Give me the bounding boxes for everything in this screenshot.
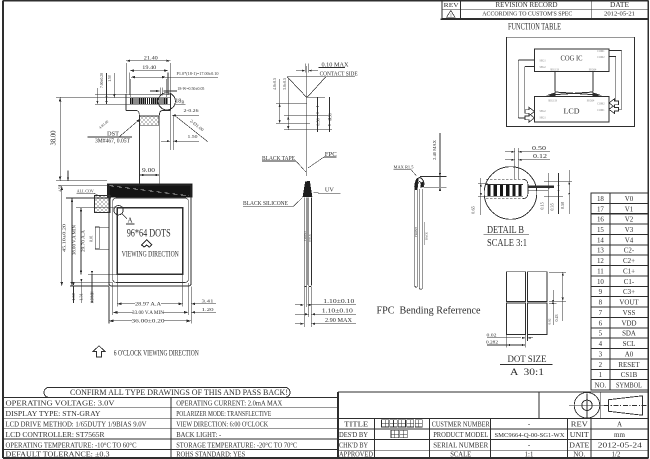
svg-text:2: 2 xyxy=(599,362,603,369)
svg-text:SDA: SDA xyxy=(622,331,636,338)
svg-text:0.50: 0.50 xyxy=(315,118,320,126)
svg-text:19.40: 19.40 xyxy=(142,66,157,71)
svg-text:36.00±0.20: 36.00±0.20 xyxy=(132,320,166,325)
svg-text:3.0±0.5: 3.0±0.5 xyxy=(283,78,287,90)
svg-text:0.50: 0.50 xyxy=(532,146,546,152)
svg-text:VSS: VSS xyxy=(623,310,636,317)
svg-text:TITLE: TITLE xyxy=(344,420,368,428)
svg-text:POLARIZER MODE: TRANSFLECTIVE: POLARIZER MODE: TRANSFLECTIVE xyxy=(176,409,271,418)
svg-text:1/2: 1/2 xyxy=(612,452,621,459)
svg-text:BLACK SILICONE: BLACK SILICONE xyxy=(243,201,288,207)
svg-text:A 30:1: A 30:1 xyxy=(510,367,544,378)
svg-text:UV: UV xyxy=(325,188,335,194)
svg-text:COM2: COM2 xyxy=(597,56,605,59)
svg-text:29.70 A.A: 29.70 A.A xyxy=(81,229,86,252)
svg-text:REV: REV xyxy=(444,2,459,9)
svg-text:ACCORDING TO CUSTOM'S SPEC: ACCORDING TO CUSTOM'S SPEC xyxy=(482,11,572,17)
svg-text:SCL: SCL xyxy=(623,341,636,348)
svg-text:1.50: 1.50 xyxy=(188,134,198,139)
svg-text:0.15: 0.15 xyxy=(540,202,545,209)
svg-text:OPERATING TEMPERATURE: -10°C T: OPERATING TEMPERATURE: -10°C TO 60°C xyxy=(6,440,137,449)
svg-text:6: 6 xyxy=(599,320,603,327)
svg-text:1: 1 xyxy=(599,372,603,379)
svg-text:RESET: RESET xyxy=(618,362,640,369)
svg-text:45.10±0.20: 45.10±0.20 xyxy=(61,223,66,252)
svg-text:0.50: 0.50 xyxy=(560,202,565,209)
svg-text:COM2: COM2 xyxy=(597,103,605,106)
svg-text:COM1: COM1 xyxy=(597,109,605,112)
svg-text:P1.0*(18-1)=17.00±0.10: P1.0*(18-1)=17.00±0.10 xyxy=(177,71,219,76)
svg-text:UNIT: UNIT xyxy=(570,431,590,439)
svg-text:SCALE: SCALE xyxy=(450,451,471,459)
svg-text:DATE: DATE xyxy=(610,2,629,9)
svg-text:1.50: 1.50 xyxy=(108,75,112,82)
svg-text:9: 9 xyxy=(599,289,603,296)
svg-text:REVISION RECORD: REVISION RECORD xyxy=(496,2,558,9)
svg-text:0.65: 0.65 xyxy=(471,205,476,213)
svg-text:8: 8 xyxy=(599,300,603,307)
svg-text:DATE: DATE xyxy=(569,442,589,450)
svg-text:38.00 V.A MIN: 38.00 V.A MIN xyxy=(72,224,77,255)
svg-text:96*64 DOTS: 96*64 DOTS xyxy=(127,227,171,239)
svg-text:DETAIL B: DETAIL B xyxy=(487,225,524,236)
svg-text:1.10±0.10: 1.10±0.10 xyxy=(322,308,353,314)
svg-text:C2+: C2+ xyxy=(623,258,635,265)
svg-text:BACK LIGHT: -: BACK LIGHT: - xyxy=(176,430,221,439)
svg-text:FRONT: FRONT xyxy=(414,227,418,237)
svg-text:LCD DRIVE METHOD: 1/65DUTY 1/9: LCD DRIVE METHOD: 1/65DUTY 1/9BIAS 9.0V xyxy=(6,419,147,428)
svg-text:11: 11 xyxy=(597,269,604,276)
svg-text:0.12: 0.12 xyxy=(533,154,547,160)
svg-text:MAX R1.5: MAX R1.5 xyxy=(394,164,414,169)
svg-text:PRODUCT MODEL: PRODUCT MODEL xyxy=(433,431,488,439)
svg-text:SEG2: SEG2 xyxy=(540,110,547,113)
svg-text:COM1: COM1 xyxy=(597,50,605,53)
svg-text:SERIAL NUMBER: SERIAL NUMBER xyxy=(433,442,488,450)
svg-text:DES'D BY: DES'D BY xyxy=(339,431,368,439)
svg-text:SEG133: SEG133 xyxy=(550,68,559,71)
svg-text:7: 7 xyxy=(599,310,603,317)
svg-text:21.40: 21.40 xyxy=(144,56,159,61)
svg-text:A0: A0 xyxy=(625,351,634,358)
svg-text:SEG2: SEG2 xyxy=(540,66,547,69)
svg-text:SEG1: SEG1 xyxy=(540,117,547,120)
svg-text:14.50 MIN: 14.50 MIN xyxy=(89,292,94,304)
svg-text:BACK: BACK xyxy=(308,233,312,242)
svg-text:C3+: C3+ xyxy=(623,289,635,296)
svg-text:0.282: 0.282 xyxy=(486,341,498,345)
svg-text:18-W=0.50±0.05: 18-W=0.50±0.05 xyxy=(177,86,204,91)
svg-text:V3: V3 xyxy=(625,227,634,234)
svg-text:1:1: 1:1 xyxy=(525,452,534,459)
svg-text:NO.: NO. xyxy=(595,383,607,390)
svg-text:0.50: 0.50 xyxy=(327,113,332,121)
svg-text:VIEW DIRECTION: 6:00 O'CLOCK: VIEW DIRECTION: 6:00 O'CLOCK xyxy=(176,419,268,428)
svg-text:5: 5 xyxy=(599,331,603,338)
svg-text:SCALE 3:1: SCALE 3:1 xyxy=(487,238,527,249)
svg-text:V4: V4 xyxy=(625,237,634,244)
svg-text:2-0.26: 2-0.26 xyxy=(184,108,200,113)
svg-text:9.00: 9.00 xyxy=(142,168,155,174)
svg-text:CUSTMER NUMBER: CUSTMER NUMBER xyxy=(432,420,490,428)
svg-text:STORAGE TEMPERATURE: -20°C TO: STORAGE TEMPERATURE: -20°C TO 70°C xyxy=(176,440,297,449)
svg-text:SEG64: SEG64 xyxy=(587,100,595,103)
svg-text:3M#467, 0.05T: 3M#467, 0.05T xyxy=(95,139,130,145)
svg-text:APPROVED: APPROVED xyxy=(339,451,373,459)
svg-text:ALL COV: ALL COV xyxy=(77,189,94,193)
svg-text:1.31: 1.31 xyxy=(79,293,84,300)
svg-text:1.50: 1.50 xyxy=(71,293,76,300)
svg-text:33.00 V.A MIN: 33.00 V.A MIN xyxy=(132,311,165,316)
svg-text:ROHS STANDARD: YES: ROHS STANDARD: YES xyxy=(176,450,245,459)
svg-text:10: 10 xyxy=(597,279,604,286)
svg-text:SEG64: SEG64 xyxy=(589,68,597,71)
svg-text:CONFIRM ALL TYPE DRAWINGS OF T: CONFIRM ALL TYPE DRAWINGS OF THIS AND PA… xyxy=(70,388,288,397)
svg-text:0.35: 0.35 xyxy=(550,203,555,210)
svg-text:LCD: LCD xyxy=(564,107,580,116)
svg-text:0.02: 0.02 xyxy=(487,334,497,338)
svg-text:16: 16 xyxy=(597,217,604,224)
svg-text:VOUT: VOUT xyxy=(619,300,639,307)
svg-text:1.10±0.10: 1.10±0.10 xyxy=(323,299,354,305)
svg-text:SEG133: SEG133 xyxy=(548,100,557,103)
svg-text:DEFAULT TOLERANCE: ±0.3: DEFAULT TOLERANCE: ±0.3 xyxy=(6,450,110,459)
svg-text:VIEWING DIRECTION: VIEWING DIRECTION xyxy=(122,250,179,259)
svg-text:1: 1 xyxy=(450,13,452,18)
svg-text:4: 4 xyxy=(599,341,603,348)
svg-text:COG IC: COG IC xyxy=(561,56,583,63)
svg-text:C2-: C2- xyxy=(624,248,635,255)
svg-text:CHK'D BY: CHK'D BY xyxy=(339,442,368,450)
svg-text:SMC9664-Q-00-SG1-WX: SMC9664-Q-00-SG1-WX xyxy=(495,432,565,439)
svg-text:1.20: 1.20 xyxy=(202,307,215,312)
svg-text:DISPLAY TYPE: STN-GRAY: DISPLAY TYPE: STN-GRAY xyxy=(6,409,102,418)
svg-text:B: B xyxy=(181,100,184,105)
svg-text:C1+: C1+ xyxy=(623,269,635,276)
svg-text:2012-05-21: 2012-05-21 xyxy=(604,10,635,17)
svg-text:8.01: 8.01 xyxy=(90,235,94,242)
svg-text:28.97 A.A: 28.97 A.A xyxy=(135,303,162,308)
svg-text:FRONT: FRONT xyxy=(303,231,307,241)
svg-text:12: 12 xyxy=(597,258,604,265)
svg-text:V1: V1 xyxy=(625,206,634,213)
svg-text:0.02: 0.02 xyxy=(547,318,551,324)
svg-text:6 O'CLOCK VIEWING DIRECTION: 6 O'CLOCK VIEWING DIRECTION xyxy=(114,349,199,358)
svg-text:2.90 MAX: 2.90 MAX xyxy=(325,318,353,324)
svg-text:4.50: 4.50 xyxy=(59,185,63,192)
svg-text:FPC Bending Referrence: FPC Bending Referrence xyxy=(377,305,481,316)
svg-text:V2: V2 xyxy=(625,217,634,224)
svg-text:4.0±0.5: 4.0±0.5 xyxy=(273,78,277,90)
svg-text:REV: REV xyxy=(571,420,588,428)
svg-text:NO.: NO. xyxy=(573,451,585,459)
svg-text:VDD: VDD xyxy=(622,320,637,327)
svg-text:17: 17 xyxy=(597,206,604,213)
svg-text:38.00: 38.00 xyxy=(50,130,57,146)
svg-text:V0: V0 xyxy=(625,196,634,203)
svg-text:BACK: BACK xyxy=(425,231,429,240)
svg-text:SEG1: SEG1 xyxy=(540,60,547,63)
svg-text:2012-05-24: 2012-05-24 xyxy=(598,443,643,450)
svg-text:OPERATING CURRENT: 2.0mA MAX: OPERATING CURRENT: 2.0mA MAX xyxy=(176,399,282,408)
svg-text:13: 13 xyxy=(597,248,604,255)
svg-text:FUNCTION TABLE: FUNCTION TABLE xyxy=(508,21,561,32)
svg-text:CS1B: CS1B xyxy=(621,372,638,379)
svg-text:15: 15 xyxy=(597,227,604,234)
svg-text:14: 14 xyxy=(597,237,604,244)
svg-text:0.43: 0.43 xyxy=(554,315,559,322)
svg-text:18: 18 xyxy=(597,196,604,203)
svg-text:LCD CONTROLLER: ST7565R: LCD CONTROLLER: ST7565R xyxy=(6,430,106,439)
svg-text:C1-: C1- xyxy=(624,279,635,286)
svg-text:3: 3 xyxy=(599,351,603,358)
svg-text:2.40 MAX: 2.40 MAX xyxy=(432,139,437,160)
svg-text:DOT SIZE: DOT SIZE xyxy=(508,354,547,365)
svg-text:7.00±0.20: 7.00±0.20 xyxy=(100,73,104,88)
svg-text:3.41: 3.41 xyxy=(202,299,215,304)
svg-text:mm: mm xyxy=(614,431,625,439)
svg-text:OPERATING VOLTAGE: 3.0V: OPERATING VOLTAGE: 3.0V xyxy=(6,399,116,408)
svg-text:SYMBOL: SYMBOL xyxy=(616,383,642,390)
